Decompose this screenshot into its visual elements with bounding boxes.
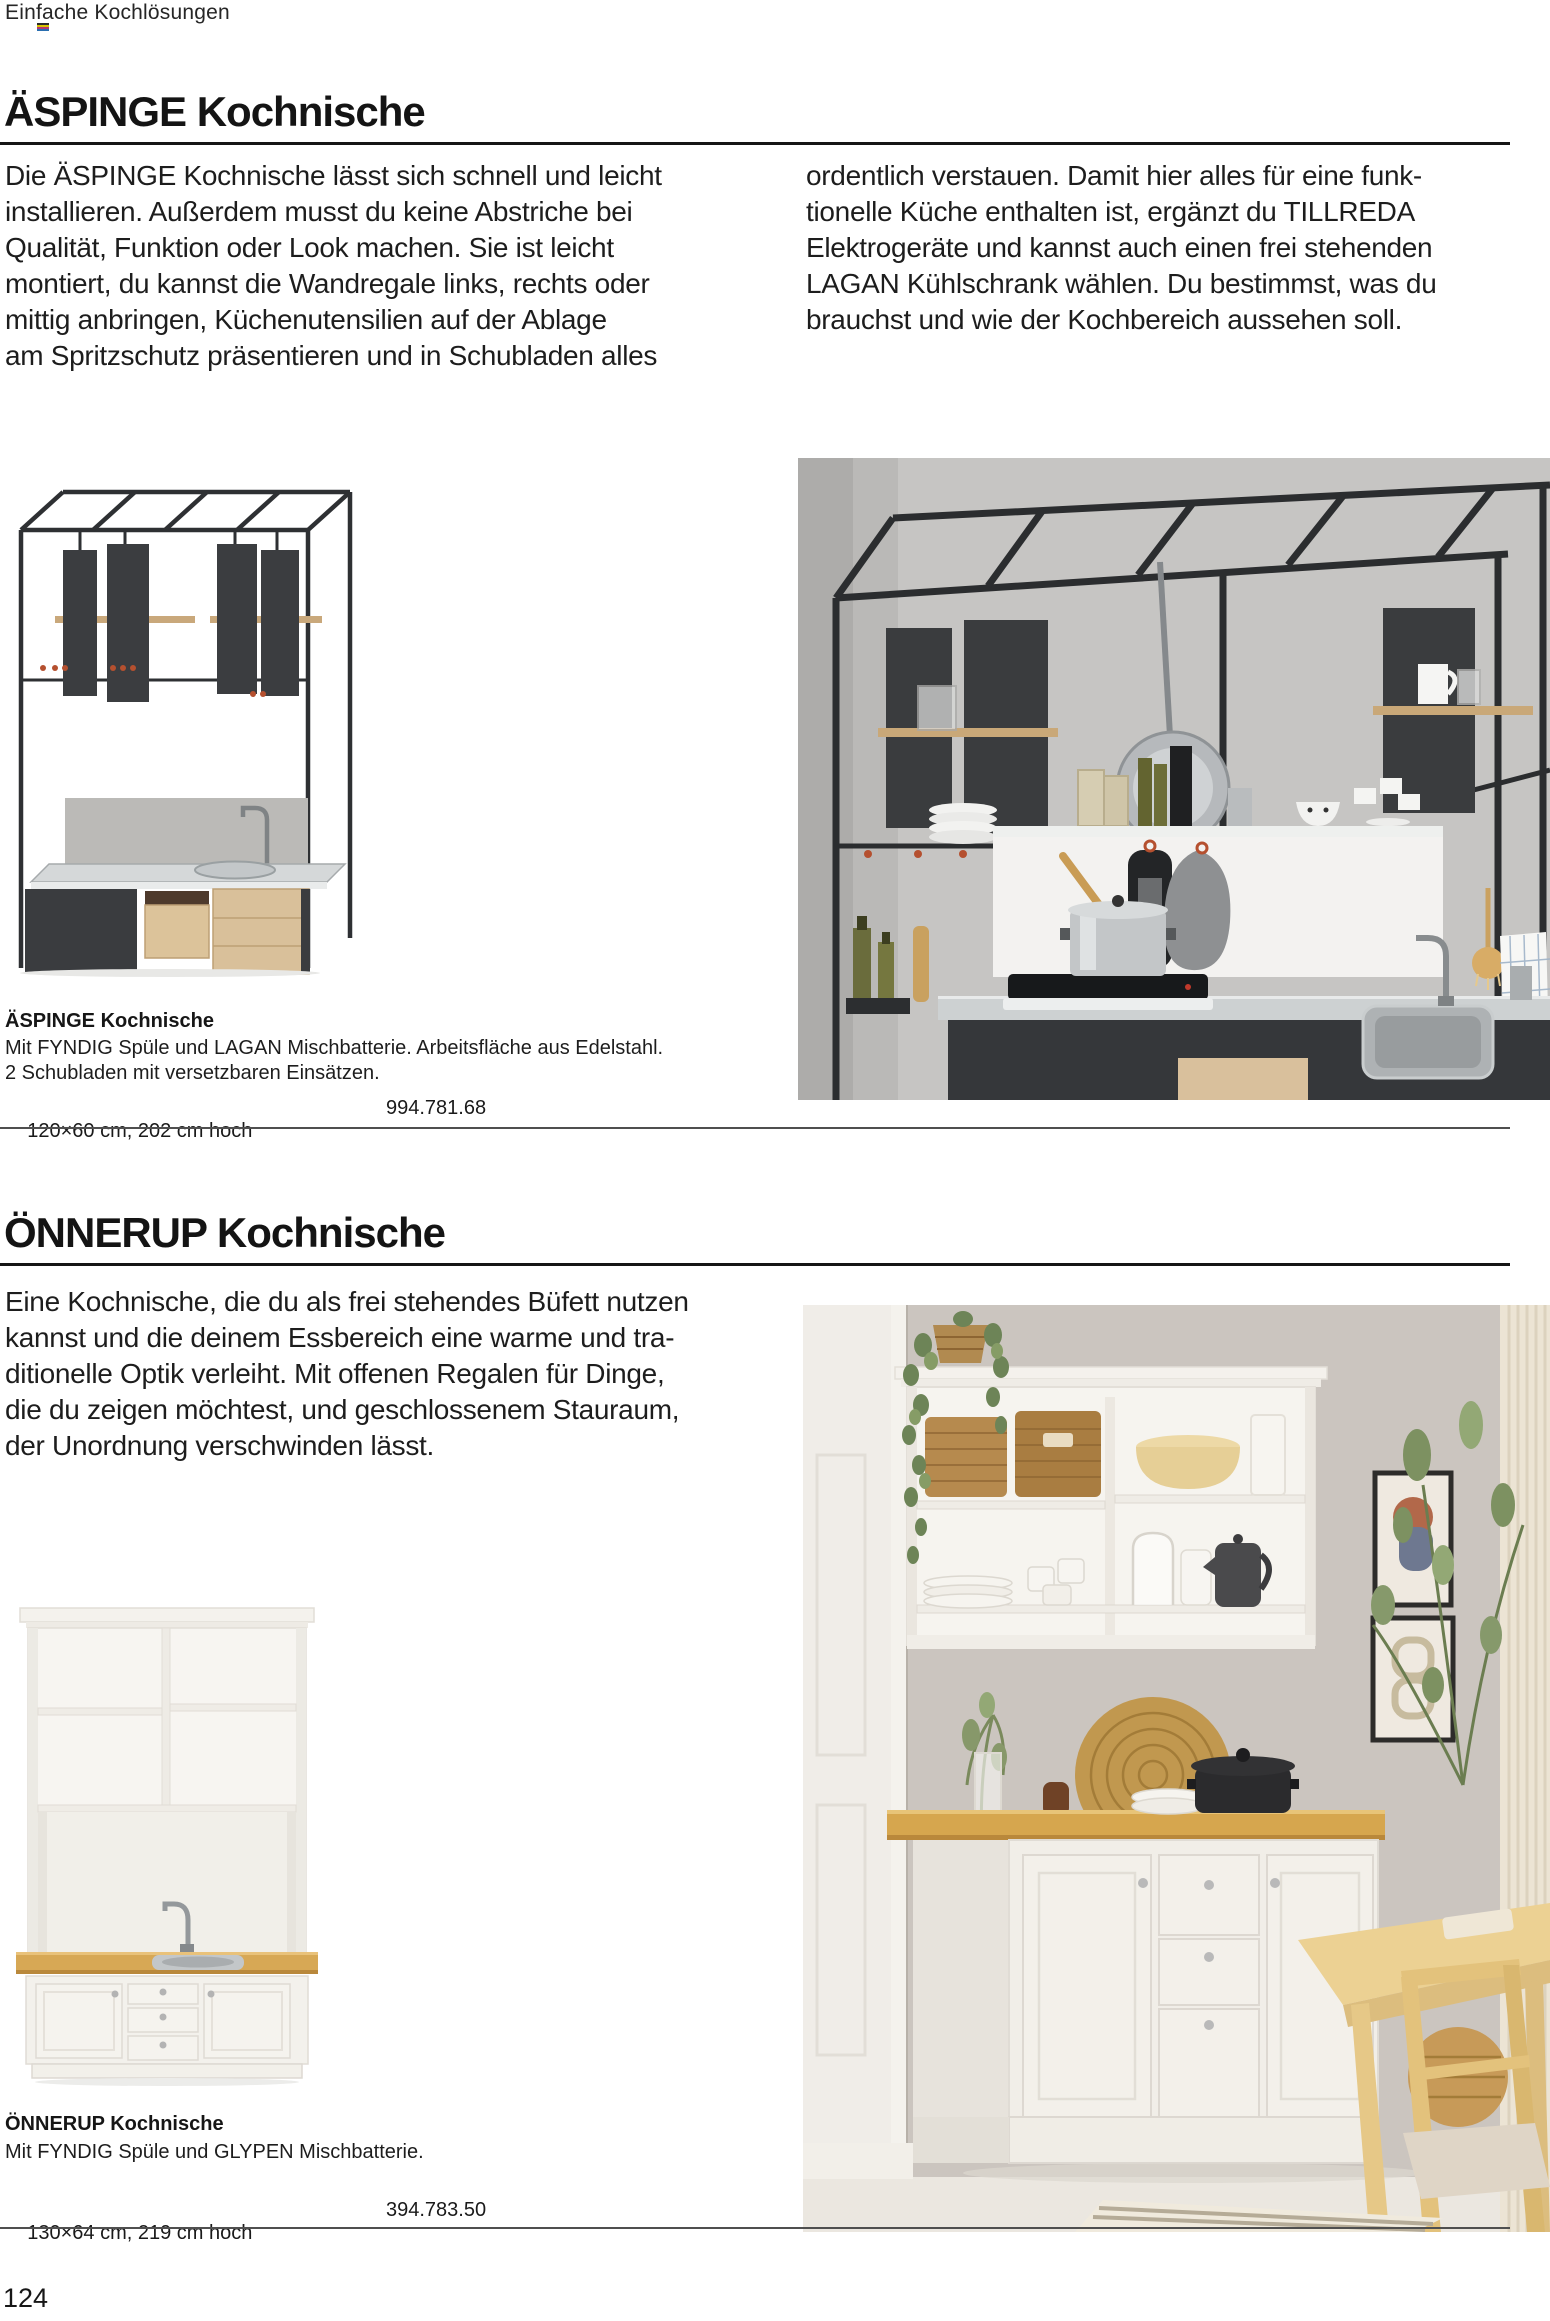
white-door xyxy=(803,1305,907,2177)
aspinge-product-photo xyxy=(5,470,500,1005)
wall-shadow xyxy=(798,458,853,1100)
onnerup-price-row: 130×64 cm, 219 cm hoch 394.783.50 xyxy=(5,2199,780,2291)
onnerup-divider-rule xyxy=(0,2227,1510,2229)
onnerup-room-photo xyxy=(803,1305,1550,2232)
wood-drawer xyxy=(145,905,209,958)
wood-worktop xyxy=(16,1952,318,1974)
onnerup-product-description: Mit FYNDIG Spüle und GLYPEN Mischbatteri… xyxy=(5,2140,424,2165)
page-number: 124 xyxy=(3,2283,48,2314)
aspinge-intro-column-2: ordentlich verstauen. Damit hier alles f… xyxy=(806,158,1512,338)
dark-door xyxy=(25,889,137,974)
plinth xyxy=(32,2064,302,2078)
wood-drawer-front xyxy=(1178,1058,1308,1100)
open-drawer-gap xyxy=(145,891,209,905)
eyebrow-title: Einfache Kochlösungen xyxy=(5,1,230,25)
onnerup-product-photo xyxy=(12,1600,322,2090)
side-panel xyxy=(301,889,310,974)
induction-hob xyxy=(1003,974,1213,1010)
base-cabinet xyxy=(26,1976,308,2064)
floor-shadow xyxy=(20,969,320,977)
onnerup-dimensions: 130×64 cm, 219 cm hoch xyxy=(27,2222,252,2244)
hutch-recess xyxy=(38,1812,296,1953)
floor-shadow xyxy=(35,2078,299,2086)
aspinge-heading-rule xyxy=(0,142,1510,145)
steel-worktop xyxy=(31,864,345,882)
ledge-shelf xyxy=(993,826,1443,837)
left-wall-cabinet xyxy=(878,620,1058,844)
wood-counter xyxy=(887,1810,1385,1840)
worktop-edge xyxy=(31,882,327,889)
aspinge-product-name: ÄSPINGE Kochnische xyxy=(5,1010,214,1033)
print-registration-mark-icon xyxy=(37,23,49,31)
onnerup-heading: ÖNNERUP Kochnische xyxy=(4,1209,445,1257)
wood-drawers xyxy=(213,889,309,974)
aspinge-product-description: Mit FYNDIG Spüle und LAGAN Mischbatterie… xyxy=(5,1036,663,1086)
aspinge-price-row: 120×60 cm, 202 cm hoch 994.781.68 xyxy=(5,1097,1510,1189)
aspinge-dimensions: 120×60 cm, 202 cm hoch xyxy=(27,1120,252,1142)
onnerup-intro: Eine Kochnische, die du als frei stehend… xyxy=(5,1284,753,1464)
aspinge-divider-rule xyxy=(0,1127,1510,1129)
sink xyxy=(162,1957,234,1968)
aspinge-room-photo xyxy=(798,458,1550,1100)
onnerup-product-name: ÖNNERUP Kochnische xyxy=(5,2113,224,2136)
baseboard xyxy=(803,2143,913,2179)
aspinge-intro-column-1: Die ÄSPINGE Kochnische lässt sich schnel… xyxy=(5,158,753,374)
aspinge-article-number: 994.781.68 xyxy=(386,1097,486,1120)
onnerup-article-number: 394.783.50 xyxy=(386,2199,486,2222)
onnerup-heading-rule xyxy=(0,1263,1510,1266)
catalog-page: Einfache Kochlösungen ÄSPINGE Kochnische… xyxy=(0,0,1550,2321)
sink xyxy=(195,862,275,879)
aspinge-heading: ÄSPINGE Kochnische xyxy=(4,88,425,136)
